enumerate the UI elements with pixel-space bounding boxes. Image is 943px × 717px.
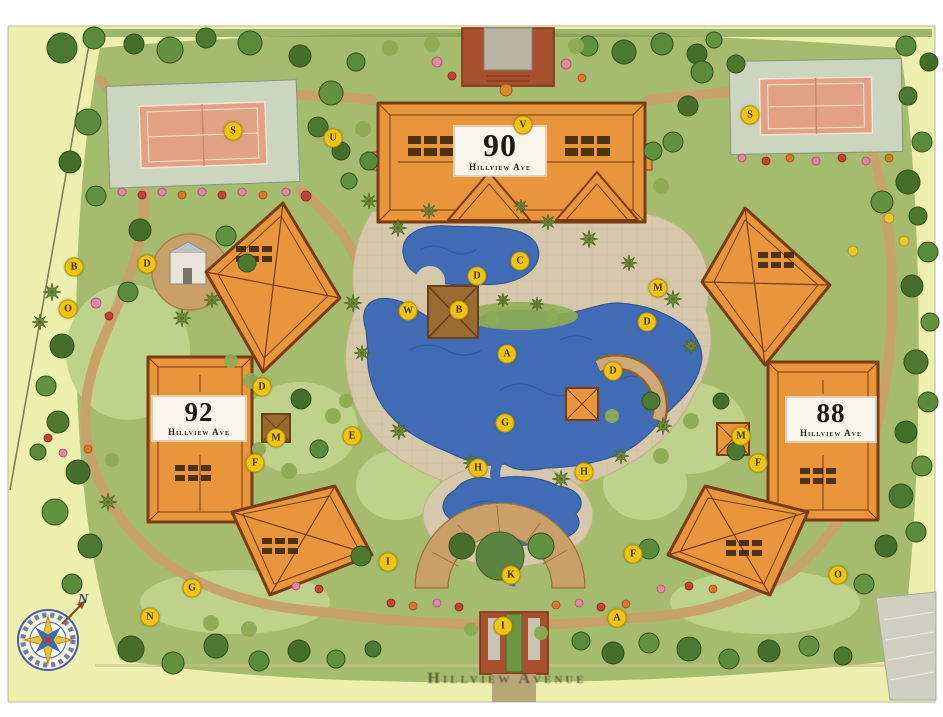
bush-icon <box>683 413 699 429</box>
tree-icon <box>644 142 662 160</box>
tree-icon <box>78 534 102 558</box>
tree-icon <box>365 641 381 657</box>
tree-icon <box>912 456 932 476</box>
window-block <box>771 262 781 268</box>
tennis-court-left <box>106 80 299 189</box>
window-block <box>424 148 437 156</box>
tree-icon <box>360 152 378 170</box>
window-block <box>771 252 781 258</box>
window-block <box>726 540 736 546</box>
window-block <box>201 475 211 481</box>
tennis-court-right <box>729 58 903 154</box>
spa-pavilion <box>566 388 598 420</box>
palm-tree-icon <box>559 477 563 481</box>
bush-icon <box>653 178 669 194</box>
window-block <box>440 136 453 144</box>
tree-icon <box>642 392 660 410</box>
flower-bed-icon <box>862 157 870 165</box>
window-block <box>784 252 794 258</box>
flower-bed-icon <box>448 72 456 80</box>
window-block <box>800 478 810 484</box>
tree-icon <box>909 207 927 225</box>
tree-icon <box>602 642 624 664</box>
tree-icon <box>162 652 184 674</box>
tree-icon <box>854 574 874 594</box>
building-90-footprint <box>372 103 652 222</box>
tree-icon <box>904 350 928 374</box>
palm-tree-icon <box>367 199 371 203</box>
tree-icon <box>204 634 228 658</box>
palm-tree-icon <box>180 316 184 320</box>
flower-bed-icon <box>433 599 441 607</box>
window-block <box>275 548 285 554</box>
window-block <box>739 540 749 546</box>
building-92-footprint <box>148 357 252 522</box>
flower-bed-icon <box>91 298 101 308</box>
tree-icon <box>449 533 475 559</box>
tree-icon <box>86 186 106 206</box>
tree-icon <box>216 226 236 246</box>
palm-tree-icon <box>501 298 505 302</box>
window-block <box>262 246 272 252</box>
bush-icon <box>281 463 297 479</box>
window-block <box>784 262 794 268</box>
tree-icon <box>157 37 183 63</box>
bush-icon <box>243 373 259 389</box>
window-block <box>565 148 578 156</box>
window-block <box>565 136 578 144</box>
window-block <box>408 148 421 156</box>
bush-icon <box>339 394 353 408</box>
window-block <box>275 538 285 544</box>
palm-tree-icon <box>351 301 355 305</box>
flower-bed-icon <box>84 445 92 453</box>
palm-tree-icon <box>619 454 623 458</box>
palm-tree-icon <box>397 429 401 433</box>
window-block <box>175 465 185 471</box>
flower-bed-icon <box>738 154 746 162</box>
window-block <box>758 252 768 258</box>
tree-icon <box>59 151 81 173</box>
palm-tree-icon <box>396 226 400 230</box>
bush-icon <box>545 309 559 323</box>
tree-icon <box>758 640 780 662</box>
tree-icon <box>663 132 683 152</box>
tree-icon <box>288 640 310 662</box>
tree-icon <box>36 376 56 396</box>
tree-icon <box>719 649 739 669</box>
window-block <box>752 540 762 546</box>
flower-bed-icon <box>622 600 630 608</box>
flower-bed-icon <box>432 57 442 67</box>
flower-bed-icon <box>105 312 113 320</box>
tree-icon <box>196 28 216 48</box>
tree-icon <box>834 647 852 665</box>
window-block <box>175 475 185 481</box>
bush-icon <box>105 453 119 467</box>
flower-bed-icon <box>282 188 290 196</box>
flower-bed-icon <box>409 602 417 610</box>
window-block <box>440 148 453 156</box>
flower-bed-icon <box>158 188 166 196</box>
window-block <box>408 136 421 144</box>
site-plan: 90 Hillview Ave 92 Hillview Ave 88 Hillv… <box>0 0 943 717</box>
tree-icon <box>129 219 151 241</box>
flower-bed-icon <box>138 191 146 199</box>
tree-icon <box>124 34 144 54</box>
tree-icon <box>347 53 365 71</box>
bush-icon <box>224 354 238 368</box>
bush-icon <box>534 626 548 640</box>
palm-tree-icon <box>587 237 591 241</box>
tree-icon <box>62 574 82 594</box>
flower-bed-icon <box>578 74 586 82</box>
flower-bed-icon <box>885 154 893 162</box>
tree-icon <box>896 36 916 56</box>
tree-icon <box>678 96 698 116</box>
tree-icon <box>319 81 343 105</box>
bush-icon <box>203 615 219 631</box>
window-block <box>826 468 836 474</box>
tree-icon <box>351 546 371 566</box>
tree-icon <box>906 522 926 542</box>
tree-icon <box>66 460 90 484</box>
window-block <box>813 468 823 474</box>
tree-icon <box>651 33 673 55</box>
tree-icon <box>83 27 105 49</box>
window-block <box>826 478 836 484</box>
site-plan-graphic <box>0 0 943 717</box>
flower-bed-icon <box>848 246 858 256</box>
bush-icon <box>252 442 266 456</box>
bush-icon <box>653 448 669 464</box>
tree-icon <box>639 539 659 559</box>
tree-icon <box>310 440 328 458</box>
flower-bed-icon <box>218 191 226 199</box>
flower-bed-icon <box>455 603 463 611</box>
tree-icon <box>291 389 311 409</box>
window-block <box>262 538 272 544</box>
bush-icon <box>605 409 619 423</box>
window-block <box>288 548 298 554</box>
palm-tree-icon <box>50 290 54 294</box>
flower-bed-icon <box>301 191 311 201</box>
tree-icon <box>332 142 350 160</box>
tree-icon <box>899 87 917 105</box>
tree-icon <box>47 411 69 433</box>
tree-icon <box>713 393 729 409</box>
tree-icon <box>528 533 554 559</box>
courtyard-pavilion-left <box>262 414 290 442</box>
flower-bed-icon <box>597 603 605 611</box>
window-block <box>262 256 272 262</box>
flower-bed-icon <box>552 601 560 609</box>
flower-bed-icon <box>178 191 186 199</box>
tree-icon <box>612 40 636 64</box>
flower-bed-icon <box>899 236 909 246</box>
tree-icon <box>118 282 138 302</box>
flower-bed-icon <box>838 154 846 162</box>
building-88-footprint <box>768 362 878 520</box>
flower-bed-icon <box>387 599 395 607</box>
top-entry <box>462 28 554 96</box>
window-block <box>288 538 298 544</box>
window-block <box>424 136 437 144</box>
flower-bed-icon <box>259 191 267 199</box>
window-block <box>752 550 762 556</box>
tree-icon <box>875 535 897 557</box>
tree-icon <box>289 45 311 67</box>
window-block <box>813 478 823 484</box>
bush-icon <box>325 408 341 424</box>
window-block <box>262 548 272 554</box>
tree-icon <box>912 132 932 152</box>
bush-icon <box>424 36 440 52</box>
tree-icon <box>47 33 77 63</box>
tree-icon <box>75 109 101 135</box>
flower-bed-icon <box>198 188 206 196</box>
tree-icon <box>727 442 745 460</box>
tree-icon <box>895 421 917 443</box>
window-block <box>739 550 749 556</box>
flower-bed-icon <box>44 434 52 442</box>
window-block <box>597 148 610 156</box>
tree-icon <box>677 637 701 661</box>
palm-tree-icon <box>546 220 550 224</box>
tree-icon <box>706 32 722 48</box>
palm-tree-icon <box>519 204 523 208</box>
flower-bed-icon <box>118 188 126 196</box>
window-block <box>758 262 768 268</box>
tree-icon <box>327 650 345 668</box>
tree-icon <box>918 242 938 262</box>
bush-icon <box>241 621 257 637</box>
flower-bed-icon <box>561 59 571 69</box>
flower-bed-icon <box>762 157 770 165</box>
window-block <box>201 465 211 471</box>
palm-tree-icon <box>427 209 431 213</box>
bush-icon <box>355 121 371 137</box>
tree-icon <box>727 55 745 73</box>
tree-icon <box>42 499 68 525</box>
flower-bed-icon <box>315 585 323 593</box>
flower-bed-icon <box>575 599 583 607</box>
tree-icon <box>921 313 939 331</box>
island-hut <box>428 286 478 338</box>
bush-icon <box>485 311 499 325</box>
window-block <box>597 136 610 144</box>
tree-icon <box>918 392 938 412</box>
palm-tree-icon <box>535 302 539 306</box>
window-block <box>236 246 246 252</box>
flower-bed-icon <box>685 582 693 590</box>
tree-icon <box>896 170 920 194</box>
tree-icon <box>639 633 659 653</box>
tree-icon <box>799 636 819 656</box>
tree-icon <box>118 636 144 662</box>
tree-icon <box>889 484 913 508</box>
tree-icon <box>341 173 357 189</box>
window-block <box>188 475 198 481</box>
palm-tree-icon <box>210 298 214 302</box>
window-block <box>726 550 736 556</box>
tree-icon <box>249 651 269 671</box>
flower-bed-icon <box>292 582 300 590</box>
flower-bed-icon <box>786 154 794 162</box>
tree-icon <box>871 191 893 213</box>
window-block <box>800 468 810 474</box>
tree-icon <box>901 275 923 297</box>
palm-tree-icon <box>469 461 473 465</box>
bush-icon <box>382 40 398 56</box>
window-block <box>581 148 594 156</box>
flower-bed-icon <box>657 585 665 593</box>
palm-tree-icon <box>627 261 631 265</box>
flower-bed-icon <box>812 157 820 165</box>
palm-tree-icon <box>38 320 42 324</box>
window-block <box>249 246 259 252</box>
flower-bed-icon <box>59 449 67 457</box>
window-block <box>581 136 594 144</box>
palm-tree-icon <box>360 351 364 355</box>
tree-icon <box>920 53 938 71</box>
tree-icon <box>30 444 46 460</box>
bush-icon <box>568 38 584 54</box>
palm-tree-icon <box>106 500 110 504</box>
tree-icon <box>691 61 713 83</box>
flower-bed-icon <box>884 213 894 223</box>
tree-icon <box>238 31 262 55</box>
tree-icon <box>572 632 590 650</box>
palm-tree-icon <box>689 344 693 348</box>
bush-icon <box>464 622 478 636</box>
tree-icon <box>308 117 328 137</box>
window-block <box>188 465 198 471</box>
flower-bed-icon <box>709 585 717 593</box>
tree-icon <box>238 254 256 272</box>
palm-tree-icon <box>671 297 675 301</box>
flower-bed-icon <box>238 188 246 196</box>
palm-tree-icon <box>661 424 665 428</box>
tree-icon <box>50 334 74 358</box>
